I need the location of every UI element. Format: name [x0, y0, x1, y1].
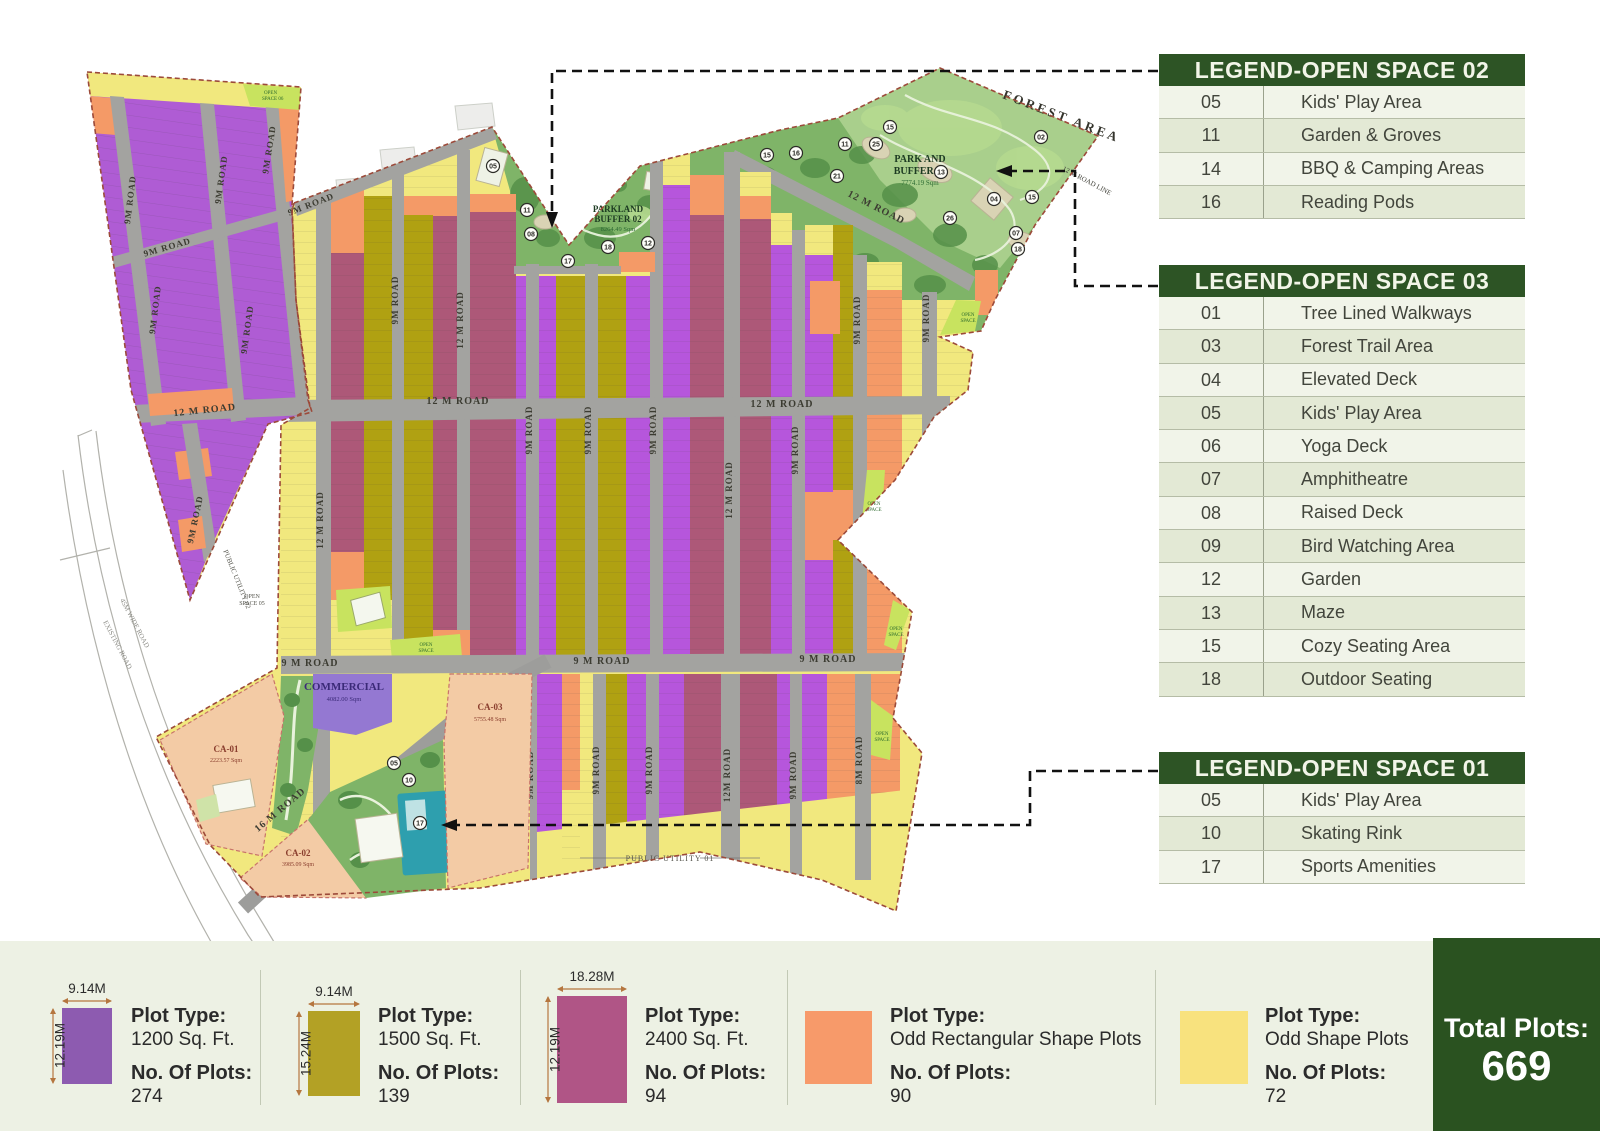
svg-text:11: 11: [841, 142, 849, 149]
svg-text:12M ROAD: 12M ROAD: [722, 748, 732, 802]
svg-text:4082.00 Sqm: 4082.00 Sqm: [327, 696, 362, 703]
svg-text:25: 25: [872, 142, 880, 149]
svg-text:04: 04: [990, 197, 998, 204]
svg-text:SPACE 06: SPACE 06: [262, 97, 284, 102]
svg-text:18: 18: [604, 245, 612, 252]
svg-text:15: 15: [1028, 195, 1036, 202]
svg-text:CA-01: CA-01: [214, 744, 239, 754]
svg-text:26: 26: [946, 216, 954, 223]
svg-text:12: 12: [644, 241, 652, 248]
svg-text:12 M ROAD: 12 M ROAD: [455, 291, 465, 349]
svg-text:12 M ROAD: 12 M ROAD: [724, 461, 734, 519]
svg-text:9M ROAD: 9M ROAD: [790, 426, 800, 475]
svg-text:OPEN: OPEN: [264, 91, 277, 96]
svg-text:OPEN: OPEN: [419, 643, 432, 648]
svg-text:5755.48 Sqm: 5755.48 Sqm: [474, 717, 506, 723]
svg-text:15: 15: [763, 153, 771, 160]
svg-text:9M ROAD: 9M ROAD: [591, 746, 601, 795]
svg-text:15: 15: [886, 125, 894, 132]
svg-text:9M ROAD: 9M ROAD: [524, 406, 534, 455]
svg-text:12 M ROAD: 12 M ROAD: [427, 396, 490, 407]
svg-text:45M WIDE ROAD: 45M WIDE ROAD: [118, 597, 151, 649]
svg-text:9 M ROAD: 9 M ROAD: [800, 654, 857, 665]
svg-text:13: 13: [937, 170, 945, 177]
svg-text:OPEN: OPEN: [889, 627, 902, 632]
svg-text:9M ROAD: 9M ROAD: [644, 746, 654, 795]
svg-text:SPACE: SPACE: [418, 649, 433, 654]
svg-text:CA-02: CA-02: [286, 848, 311, 858]
svg-text:EXISTING ROAD: EXISTING ROAD: [101, 619, 133, 670]
svg-text:08: 08: [527, 232, 535, 239]
svg-text:9M ROAD: 9M ROAD: [583, 406, 593, 455]
svg-text:05: 05: [390, 761, 398, 768]
svg-text:05: 05: [489, 164, 497, 171]
svg-text:PARK AND: PARK AND: [894, 154, 945, 165]
svg-text:9M ROAD: 9M ROAD: [390, 276, 400, 325]
svg-text:2223.57 Sqm: 2223.57 Sqm: [210, 758, 242, 764]
svg-text:12 M ROAD: 12 M ROAD: [315, 491, 325, 549]
svg-text:9 M ROAD: 9 M ROAD: [282, 658, 339, 669]
svg-text:9 M ROAD: 9 M ROAD: [574, 656, 631, 667]
svg-text:21: 21: [833, 174, 841, 181]
svg-text:9M ROAD: 9M ROAD: [788, 751, 798, 800]
svg-text:9M ROAD: 9M ROAD: [648, 406, 658, 455]
svg-text:SPACE: SPACE: [960, 319, 975, 324]
svg-text:OPEN: OPEN: [961, 313, 974, 318]
svg-text:07: 07: [1012, 231, 1020, 238]
svg-text:16: 16: [792, 151, 800, 158]
svg-text:8264.49 Sqm: 8264.49 Sqm: [601, 226, 636, 233]
svg-text:9M ROAD: 9M ROAD: [852, 296, 862, 345]
svg-text:10: 10: [405, 778, 413, 785]
svg-text:CA-03: CA-03: [478, 702, 503, 712]
svg-text:OPEN: OPEN: [244, 594, 260, 600]
svg-text:COMMERCIAL: COMMERCIAL: [304, 681, 384, 693]
svg-text:SPACE: SPACE: [888, 633, 903, 638]
svg-text:17: 17: [416, 821, 424, 828]
svg-text:3985.09 Sqm: 3985.09 Sqm: [282, 862, 314, 868]
svg-text:12 M ROAD LINE: 12 M ROAD LINE: [1061, 165, 1113, 198]
svg-text:02: 02: [1037, 135, 1045, 142]
svg-text:8M ROAD: 8M ROAD: [854, 736, 864, 785]
svg-text:17: 17: [564, 259, 572, 266]
svg-text:11: 11: [523, 208, 531, 215]
svg-text:7774.19 Sqm: 7774.19 Sqm: [901, 179, 939, 187]
svg-text:9M ROAD: 9M ROAD: [921, 294, 931, 343]
svg-text:18: 18: [1014, 247, 1022, 254]
svg-text:12 M ROAD: 12 M ROAD: [751, 399, 814, 410]
svg-text:SPACE 05: SPACE 05: [239, 601, 265, 607]
svg-text:SPACE: SPACE: [874, 738, 889, 743]
svg-text:BUFFER 02: BUFFER 02: [594, 214, 642, 224]
svg-text:OPEN: OPEN: [875, 732, 888, 737]
